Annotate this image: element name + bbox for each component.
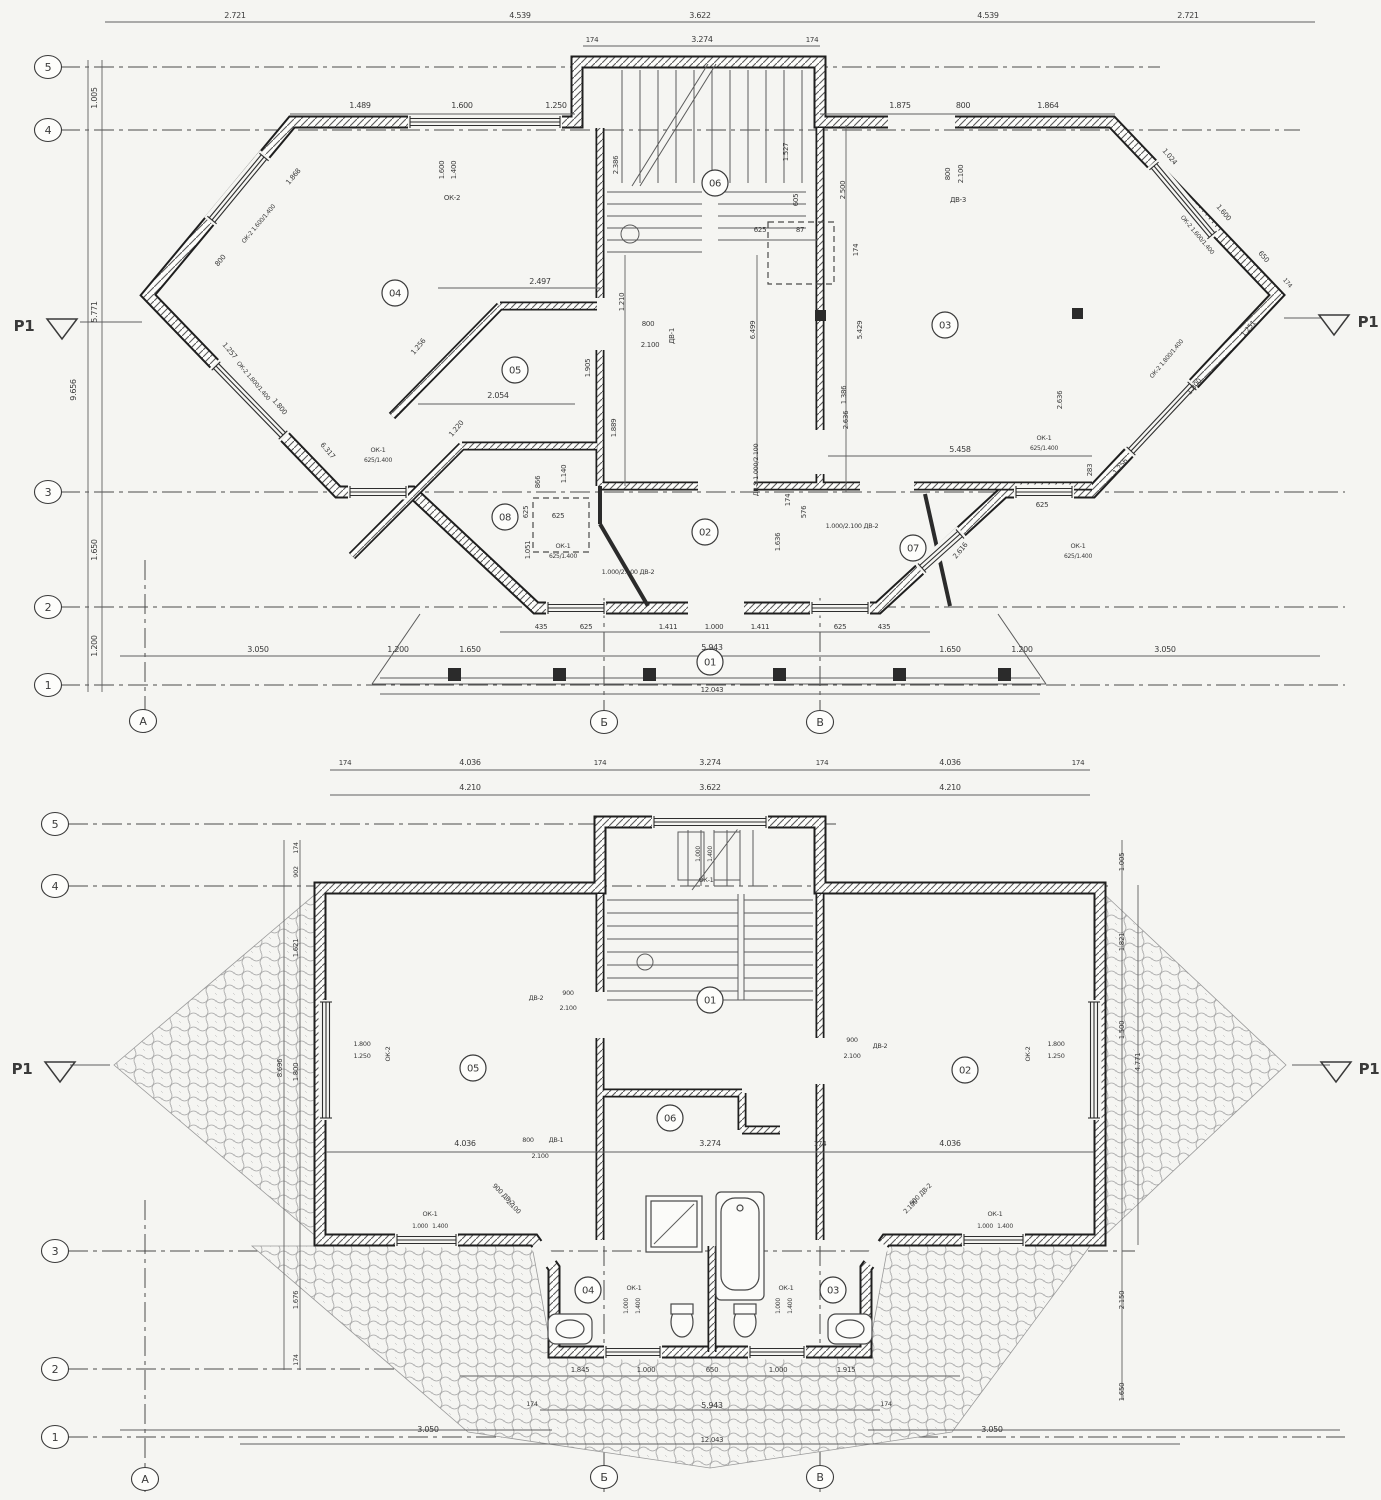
dim-label: 1.500 [1118, 1021, 1126, 1040]
dim-label: 1.210 [618, 293, 626, 312]
sink-basin [836, 1320, 864, 1338]
dim-label: ДВ-1 [549, 1136, 564, 1144]
dim-label: 2.150 [1118, 1291, 1126, 1310]
dim-label: 1.800 [353, 1040, 370, 1048]
dim-label: 174 [880, 1400, 892, 1408]
dim-label: 1.000/2.100 ДВ-2 [602, 568, 655, 576]
dim-label: 1.000/2.100 ДВ-2 [826, 522, 879, 530]
dim-label: 1.250 [353, 1052, 370, 1060]
window-glass-line [1131, 386, 1192, 451]
opening-gap [537, 1244, 551, 1264]
dim-label: 3.274 [691, 35, 713, 44]
dim-label: 5.943 [701, 643, 723, 652]
dim-label: 1.000 [623, 1298, 630, 1314]
window-glass-line [209, 155, 261, 218]
dim-label: 174 [784, 493, 792, 506]
dim-label: 1.600 [451, 101, 473, 110]
dim-label: 800 [522, 1136, 534, 1144]
dim-label: ДВ-2 [529, 994, 544, 1002]
dim-label: 3.274 [699, 758, 721, 767]
dim-label: 1.250 [1047, 1052, 1064, 1060]
dim-label: 5.943 [701, 1401, 723, 1410]
roof-hatch-right [1102, 892, 1286, 1238]
window-glass-line [1154, 166, 1212, 235]
dim-label: 1.400 [635, 1298, 642, 1314]
dim-label: ДВ-2 [873, 1042, 888, 1050]
dim-label: 12.043 [701, 686, 724, 694]
axis-marker-label: 4 [52, 880, 59, 893]
dim-label: 12.043 [701, 1436, 724, 1444]
dim-label: 174 [339, 759, 352, 767]
dim-label: 3.050 [981, 1425, 1003, 1434]
dim-label: 1.400 [707, 846, 714, 862]
dim-label: 902 [292, 866, 300, 878]
dim-label: 174 [292, 1354, 300, 1366]
section-marker-triangle [47, 319, 77, 339]
dim-label: ДВ-2 1.000/2.100 [752, 443, 760, 496]
dim-label: 650 [1256, 249, 1270, 264]
dim-label: 1.140 [560, 465, 568, 484]
dim-label: 174 [816, 759, 829, 767]
dim-label: 1.621 [292, 939, 300, 958]
dim-label: 435 [535, 623, 547, 631]
dim-label: 1.411 [751, 623, 770, 631]
dim-label: 1.600 [1215, 203, 1233, 222]
dim-label: 4.539 [509, 11, 531, 20]
floor-plan-drawing: 0405060308020701050106020403 54321АБВ543… [0, 0, 1381, 1500]
dim-label: 5.458 [949, 445, 971, 454]
toilet-tank [671, 1304, 693, 1314]
dim-label: 4.036 [459, 758, 481, 767]
dim-label: 1.251 [1239, 319, 1257, 338]
window-glass-line [215, 159, 267, 222]
dim-label: 1.256 [409, 336, 428, 356]
dim-label: ОК-2 [384, 1046, 392, 1061]
dim-label: 4.036 [454, 1139, 476, 1148]
axis-marker-label: В [816, 716, 823, 729]
dim-label: 1.650 [939, 645, 961, 654]
room-tag-number: 03 [939, 321, 951, 332]
dim-label: 2.386 [612, 155, 620, 174]
dim-label: ОК-1 [626, 1284, 641, 1292]
dim-label: 283 [1086, 464, 1094, 476]
dim-label: ОК-1 [778, 1284, 793, 1292]
dim-label: 1.676 [292, 1290, 300, 1309]
dim-label: 1.386 [840, 385, 848, 404]
dim-label: 4.210 [459, 783, 481, 792]
dim-label: 605 [792, 194, 800, 206]
room-tag-number: 08 [499, 513, 511, 524]
room-tag-number: 01 [704, 658, 716, 669]
dim-label: 5.771 [90, 301, 99, 323]
dim-label: 4.036 [939, 1139, 961, 1148]
dim-label: 1.915 [837, 1366, 856, 1374]
dim-label: 2.100 [843, 1052, 860, 1060]
dim-label: 1.800 [1047, 1040, 1064, 1048]
axis-marker-label: 3 [45, 486, 52, 499]
dim-label: 174 [806, 36, 819, 44]
dim-label: 1.875 [889, 101, 911, 110]
dim-label: 1.257 [221, 341, 239, 360]
dim-label: 174 [292, 842, 300, 854]
axis-marker-label: Б [600, 716, 607, 729]
dim-label: 1.489 [349, 101, 371, 110]
dim-label: 1.000 [977, 1223, 993, 1230]
axis-marker-label: 5 [52, 818, 59, 831]
dim-label: ОК-2 [444, 194, 460, 202]
upper-floor-plan [88, 22, 1320, 694]
room-tag-number: 07 [907, 544, 919, 555]
dim-label: 1.411 [659, 623, 678, 631]
roof-hatch-left [114, 892, 318, 1238]
dim-label: ОК-1 [698, 876, 713, 884]
dim-label: 4.210 [939, 783, 961, 792]
dim-label: 3.622 [699, 783, 721, 792]
dim-label: 800 [944, 168, 952, 180]
axis-marker-label: 5 [45, 61, 52, 74]
dim-label: 1.905 [584, 359, 592, 378]
dim-label: 1.024 [1161, 147, 1180, 167]
dim-label: 1.889 [610, 419, 618, 438]
dimension-lines-upper [88, 22, 1320, 694]
axis-marker-label: 1 [45, 679, 52, 692]
dim-label: 625/1.400 [364, 457, 392, 464]
axis-grid [60, 67, 1345, 1492]
room-tag-number: 05 [509, 366, 521, 377]
dim-label: 174 [1281, 277, 1293, 290]
dim-label: ОК-1 [987, 1210, 1002, 1218]
dim-label: 625 [580, 623, 592, 631]
dim-label: 2.054 [487, 391, 509, 400]
bathtub-inner [721, 1198, 759, 1290]
dim-label: 1.600 [438, 161, 446, 180]
dim-label: 1.200 [1011, 645, 1033, 654]
wall-openings [210, 122, 1214, 1352]
dim-label: 900 [562, 989, 574, 997]
dim-label: 2.636 [1056, 390, 1064, 409]
dim-label: 900 [846, 1036, 858, 1044]
dim-label: 2.100 [559, 1004, 576, 1012]
dim-label: 1.200 [90, 635, 99, 657]
dim-label: 174 [586, 36, 599, 44]
dim-label: 1.000 [637, 1366, 656, 1374]
window-symbols [207, 116, 1216, 1358]
dim-label: 3.050 [247, 645, 269, 654]
dim-label: 1.220 [447, 419, 465, 438]
dim-label: 3.274 [699, 1139, 721, 1148]
dim-label: 866 [534, 475, 542, 488]
dim-label: 1.400 [997, 1223, 1013, 1230]
dim-label: 174 [594, 759, 607, 767]
dim-label: ОК-1 [1070, 542, 1085, 550]
axis-marker-label: А [141, 1473, 149, 1486]
dim-label: 1.800 [292, 1063, 300, 1082]
dim-label: 174 [526, 1400, 538, 1408]
dim-label: 1.051 [524, 541, 532, 560]
dim-label: 2.100 [957, 165, 965, 184]
room-tag-number: 04 [582, 1286, 594, 1297]
blueprint-sheet: 0405060308020701050106020403 54321АБВ543… [0, 0, 1381, 1500]
section-marker-label: P1 [1359, 1060, 1380, 1078]
room-tag-number: 05 [467, 1064, 479, 1075]
dim-label: 1.005 [1118, 853, 1126, 872]
dim-label: 1.000 [412, 1223, 428, 1230]
dim-label: 1.400 [432, 1223, 448, 1230]
dim-label: 3.622 [689, 11, 711, 20]
dim-label: 1.650 [1118, 1383, 1126, 1402]
sink-basin [556, 1320, 584, 1338]
column [1072, 308, 1083, 319]
dim-label: 6.499 [749, 321, 757, 340]
dim-label: 4.036 [939, 758, 961, 767]
room-tag-number: 02 [699, 528, 711, 539]
axis-marker-label: 2 [45, 601, 52, 614]
dim-label: 625 [754, 226, 766, 234]
dim-label: 800 [642, 320, 654, 328]
dim-label: ОК-1 [422, 1210, 437, 1218]
axis-marker-label: 4 [45, 124, 52, 137]
dim-label: 800 [956, 101, 971, 110]
dim-label: 87 [796, 226, 804, 234]
dim-label: 174 [1072, 759, 1085, 767]
dim-label: 625 [1036, 501, 1048, 509]
dim-label: ОК-2 1.800/1.400 [1149, 338, 1186, 380]
dim-label: 5.429 [856, 321, 864, 340]
dim-label: ОК-1 [370, 446, 385, 454]
section-marker-label: P1 [1358, 313, 1379, 331]
dim-label: 1.000 [775, 1298, 782, 1314]
dim-label: 1.845 [571, 1366, 590, 1374]
dim-label: 2.100 [505, 1198, 523, 1216]
dim-label: 576 [800, 505, 808, 518]
room-tag-number: 04 [389, 289, 401, 300]
dim-label: 1.400 [787, 1298, 794, 1314]
section-marker-label: P1 [14, 317, 35, 335]
dim-label: 1.250 [545, 101, 567, 110]
dim-label: 4.771 [1134, 1053, 1142, 1072]
dim-label: 2.721 [224, 11, 246, 20]
toilet-tank [734, 1304, 756, 1314]
dim-label: 1.650 [459, 645, 481, 654]
axis-marker-label: 2 [52, 1363, 59, 1376]
dim-label: 625/1.400 [1030, 445, 1058, 452]
dim-label: 1.000 [769, 1366, 788, 1374]
axis-marker-label: 1 [52, 1431, 59, 1444]
axis-marker-label: Б [600, 1471, 607, 1484]
dim-label: 1.400 [450, 161, 458, 180]
dim-label: 1.650 [90, 539, 99, 561]
window-glass-line [1134, 388, 1195, 453]
dim-label: 2.636 [842, 410, 850, 429]
dim-label: 4.539 [977, 11, 999, 20]
dim-label: 1.800 [271, 397, 289, 416]
dim-label: 1.000 [705, 623, 724, 631]
dim-label: 1.000 [695, 846, 702, 862]
dim-label: 1.868 [284, 167, 302, 186]
dim-label: ОК-1 [555, 542, 570, 550]
window-glass-line [1128, 384, 1189, 449]
dim-label: 625/1.400 [1064, 553, 1092, 560]
window-glass-line [1151, 168, 1209, 237]
dim-label: 625 [552, 512, 564, 520]
dim-label: ОК-2 [1024, 1046, 1032, 1061]
dim-label: 1.200 [387, 645, 409, 654]
dim-label: 2.500 [839, 181, 847, 200]
dim-label: ОК-1 [1036, 434, 1051, 442]
dim-label: 174 [852, 243, 860, 256]
room-tag-number: 03 [827, 1286, 839, 1297]
bathtub-drain [737, 1205, 743, 1211]
dim-label: 8.696 [276, 1058, 284, 1077]
dim-label: 2.100 [531, 1152, 548, 1160]
window-glass-line [212, 157, 264, 220]
dim-label: 6.317 [319, 441, 337, 460]
dim-label: 3.050 [1154, 645, 1176, 654]
room-tag-number: 02 [959, 1066, 971, 1077]
section-marker-label: P1 [12, 1060, 33, 1078]
opening-gap [869, 1244, 883, 1264]
dim-label: 650 [706, 1366, 718, 1374]
dim-label: 625 [834, 623, 846, 631]
dim-label: 625 [522, 506, 530, 518]
dim-label: ДВ-1 [668, 328, 676, 344]
dim-label: 2.721 [1177, 11, 1199, 20]
column [815, 310, 826, 321]
axis-marker-label: 3 [52, 1245, 59, 1258]
dim-label: 1.864 [1037, 101, 1059, 110]
dim-label: 800 [213, 253, 227, 268]
dim-label: 2.497 [529, 277, 551, 286]
dim-label: 435 [878, 623, 890, 631]
dim-label: 3.050 [417, 1425, 439, 1434]
axis-marker-label: В [816, 1471, 823, 1484]
section-marker-triangle [1319, 315, 1349, 335]
room-tag-number: 06 [709, 179, 721, 190]
dim-label: 1.005 [90, 87, 99, 109]
dim-label: 1.527 [782, 143, 790, 162]
dim-label: 1.636 [774, 532, 782, 551]
room-tag-number: 06 [664, 1114, 676, 1125]
dim-label: 9.656 [69, 379, 78, 401]
axis-marker-label: А [139, 715, 147, 728]
dim-label: 625/1.400 [549, 553, 577, 560]
dim-label: 2.100 [641, 341, 660, 349]
dim-label: ДВ-3 [950, 196, 966, 204]
dim-label: ОК-2 1.600/1.400 [241, 203, 278, 245]
room-tag-number: 01 [704, 996, 716, 1007]
dim-label: 1.821 [1118, 933, 1126, 952]
dim-label: 174 [814, 1140, 827, 1148]
